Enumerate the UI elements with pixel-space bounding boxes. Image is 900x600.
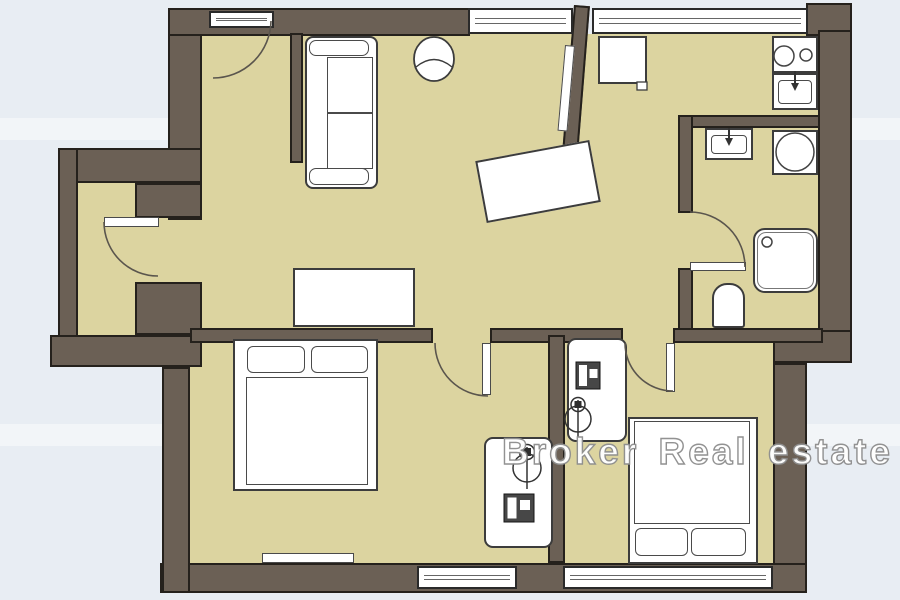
sofa-armrest-bottom (309, 168, 369, 185)
bathroom-sink-basin (711, 135, 747, 154)
wall-bathroom-left-lower (678, 268, 693, 330)
sofa-cushion-1 (327, 57, 373, 113)
single-bed-pillow-2 (691, 528, 746, 556)
shower (753, 228, 818, 293)
sofa-cushion-2 (327, 113, 373, 169)
entrance-door-leaf (104, 217, 159, 227)
wardrobe (293, 268, 415, 327)
sofa (305, 36, 378, 189)
double-bed-mattress (246, 377, 368, 485)
wall-bathroom-bottom (673, 328, 823, 343)
shower-inner-rim (757, 232, 814, 289)
wall-right-upper (818, 30, 852, 345)
toilet (712, 283, 745, 328)
wall-niche-bottom (50, 335, 202, 367)
window-bedroom-2 (563, 566, 773, 589)
wall-niche-jamb-upper (135, 183, 202, 218)
radiator (262, 553, 354, 563)
double-bed-pillow-2 (311, 346, 368, 373)
floor-entrance-passage (135, 218, 202, 282)
window-bedroom-1 (417, 566, 517, 589)
double-bed-pillow-1 (247, 346, 305, 373)
wall-kitchen-bath-divider (682, 115, 820, 128)
bathroom-door-leaf (690, 262, 746, 271)
kitchen-sink-basin (778, 80, 812, 104)
wall-bathroom-left-upper (678, 115, 693, 213)
bedroom1-door-leaf (482, 343, 491, 395)
sofa-armrest-top (309, 40, 369, 56)
wall-left-lower (162, 367, 190, 593)
desk-bedroom-2 (567, 338, 627, 442)
window-kitchen (592, 8, 808, 34)
watermark-text: Broker Real estate (502, 431, 893, 473)
single-bed-pillow-1 (635, 528, 688, 556)
kitchen-table (598, 36, 647, 84)
wall-niche-top (58, 148, 202, 183)
double-bed (233, 339, 378, 491)
wall-partition-stub (290, 33, 303, 163)
bathroom-sink (705, 128, 753, 160)
floor-entrance-niche (78, 183, 135, 335)
bedroom2-door-leaf (666, 343, 675, 392)
window-living-room (468, 8, 573, 34)
stove (772, 36, 818, 73)
floor-plan-image: Broker Real estate (0, 0, 900, 600)
kitchen-sink (772, 73, 818, 110)
balcony-door-panel (209, 11, 274, 28)
washing-machine (772, 130, 818, 175)
wall-right-lower (773, 363, 807, 593)
